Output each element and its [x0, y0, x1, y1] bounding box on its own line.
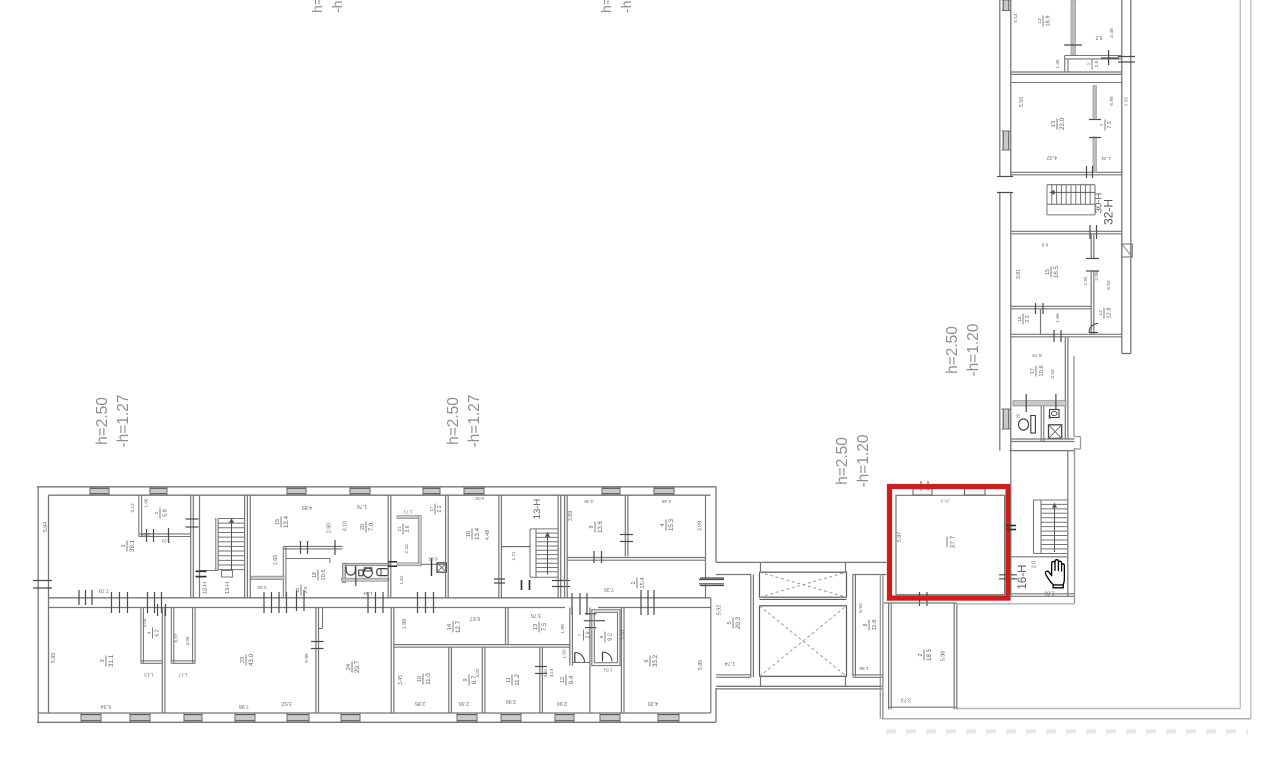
- svg-text:15: 15: [1045, 269, 1051, 275]
- svg-text:16: 16: [1017, 316, 1022, 322]
- svg-text:7.35: 7.35: [604, 586, 614, 592]
- svg-text:1.71: 1.71: [403, 510, 412, 515]
- svg-text:2.50: 2.50: [257, 584, 267, 590]
- svg-text:18.9: 18.9: [1046, 16, 1052, 27]
- svg-text:3: 3: [100, 659, 106, 662]
- svg-text:11.6: 11.6: [872, 620, 878, 631]
- svg-text:31.1: 31.1: [108, 654, 115, 667]
- svg-text:3.81: 3.81: [543, 668, 548, 677]
- svg-text:11: 11: [506, 677, 512, 683]
- svg-text:14: 14: [447, 624, 453, 630]
- svg-text:4.10: 4.10: [343, 521, 349, 531]
- svg-text:3.61: 3.61: [161, 538, 171, 544]
- svg-text:7.3: 7.3: [1107, 121, 1113, 128]
- svg-text:1.76: 1.76: [357, 503, 367, 509]
- svg-text:15: 15: [275, 519, 281, 525]
- svg-text:13: 13: [533, 624, 539, 630]
- svg-text:8.2: 8.2: [1095, 34, 1102, 40]
- svg-text:2.5: 2.5: [1094, 60, 1100, 67]
- svg-text:5.98: 5.98: [941, 651, 947, 661]
- svg-text:43.0: 43.0: [248, 653, 255, 666]
- svg-text:39.1: 39.1: [129, 539, 136, 552]
- svg-text:1: 1: [121, 544, 127, 547]
- svg-text:1.71: 1.71: [511, 551, 517, 561]
- svg-text:1.94: 1.94: [363, 590, 373, 596]
- svg-text:12: 12: [1037, 18, 1043, 24]
- svg-text:2.98: 2.98: [1094, 271, 1100, 281]
- svg-text:5.53: 5.53: [1106, 280, 1112, 290]
- svg-text:8: 8: [863, 623, 869, 626]
- svg-text:1.13: 1.13: [144, 672, 154, 678]
- svg-text:2.3: 2.3: [1025, 315, 1031, 322]
- svg-text:-h=1.27: -h=1.27: [115, 394, 132, 447]
- svg-text:1.98: 1.98: [402, 619, 408, 629]
- svg-text:3.52: 3.52: [282, 700, 292, 706]
- svg-text:2.90: 2.90: [327, 523, 333, 533]
- svg-text:2.92: 2.92: [1083, 276, 1088, 285]
- svg-text:1.81: 1.81: [399, 575, 404, 584]
- svg-text:5.95: 5.95: [304, 653, 310, 663]
- svg-text:4: 4: [660, 523, 666, 526]
- svg-text:6: 6: [644, 659, 650, 662]
- svg-text:6.2: 6.2: [155, 629, 161, 636]
- svg-text:13-Н: 13-Н: [532, 499, 543, 520]
- svg-text:24: 24: [346, 664, 352, 670]
- svg-text:2.2: 2.2: [437, 505, 443, 512]
- svg-text:4: 4: [146, 631, 151, 634]
- svg-text:9: 9: [463, 678, 469, 681]
- svg-text:6.34: 6.34: [101, 703, 111, 709]
- svg-text:15.4: 15.4: [640, 577, 646, 589]
- svg-text:5.95: 5.95: [1109, 96, 1115, 106]
- svg-text:h=2.50: h=2.50: [445, 397, 462, 445]
- svg-text:15.3: 15.3: [668, 518, 675, 531]
- svg-text:32-Н: 32-Н: [1102, 199, 1116, 225]
- svg-text:-h=1.27: -h=1.27: [329, 0, 345, 13]
- svg-text:5: 5: [727, 621, 733, 624]
- svg-text:13-Н: 13-Н: [225, 582, 231, 594]
- svg-text:3.02: 3.02: [475, 668, 480, 677]
- svg-text:2.99: 2.99: [141, 531, 151, 537]
- svg-text:1.66: 1.66: [1055, 313, 1061, 323]
- svg-text:37.7: 37.7: [949, 535, 956, 548]
- svg-text:14: 14: [1098, 310, 1104, 316]
- svg-text:10: 10: [417, 676, 423, 682]
- svg-text:3.00: 3.00: [475, 495, 485, 501]
- svg-text:19: 19: [1016, 414, 1021, 419]
- svg-text:2.36: 2.36: [459, 700, 469, 706]
- svg-text:1.17: 1.17: [178, 672, 188, 678]
- svg-text:18: 18: [312, 572, 318, 578]
- svg-text:2.48: 2.48: [1109, 28, 1115, 38]
- svg-text:21: 21: [397, 526, 402, 531]
- svg-text:2.90: 2.90: [557, 700, 567, 706]
- svg-text:20.3: 20.3: [735, 616, 742, 629]
- svg-text:17: 17: [429, 506, 434, 511]
- svg-text:23.0: 23.0: [1059, 117, 1066, 130]
- svg-text:2: 2: [918, 653, 924, 656]
- svg-text:22: 22: [295, 587, 300, 592]
- svg-text:5.92: 5.92: [717, 605, 723, 615]
- svg-text:1.30: 1.30: [1055, 59, 1060, 68]
- svg-text:18: 18: [1047, 415, 1052, 420]
- svg-text:11.2: 11.2: [514, 674, 521, 686]
- svg-text:9.4: 9.4: [568, 675, 575, 684]
- svg-text:2.6: 2.6: [405, 525, 411, 532]
- svg-text:16: 16: [466, 531, 472, 537]
- svg-text:1.96: 1.96: [859, 665, 869, 671]
- svg-text:5.94: 5.94: [43, 522, 49, 532]
- svg-text:13.4: 13.4: [474, 527, 481, 540]
- svg-text:5.95: 5.95: [51, 653, 57, 663]
- svg-text:13.4: 13.4: [283, 515, 290, 528]
- svg-text:h=2.50: h=2.50: [598, 0, 614, 13]
- svg-text:10.8: 10.8: [1039, 365, 1045, 376]
- svg-text:7.0: 7.0: [368, 522, 375, 531]
- svg-text:3.06: 3.06: [185, 636, 190, 645]
- svg-text:2.96: 2.96: [506, 698, 516, 704]
- svg-text:5.95: 5.95: [1124, 96, 1130, 106]
- svg-text:5.97: 5.97: [897, 532, 903, 542]
- svg-text:12.8: 12.8: [1107, 308, 1113, 319]
- svg-text:13.6: 13.6: [597, 520, 604, 533]
- svg-text:2.80: 2.80: [1044, 590, 1055, 596]
- svg-text:20.7: 20.7: [354, 660, 361, 673]
- svg-text:26.9: 26.9: [940, 499, 949, 504]
- svg-text:12-Н: 12-Н: [203, 582, 209, 594]
- svg-text:3.04: 3.04: [1050, 369, 1056, 379]
- svg-text:1.33: 1.33: [1101, 156, 1110, 161]
- svg-text:33.2: 33.2: [652, 654, 659, 667]
- svg-text:-h=1.27: -h=1.27: [466, 394, 483, 447]
- svg-text:5.50: 5.50: [1019, 97, 1025, 107]
- svg-text:13: 13: [1051, 121, 1057, 127]
- svg-text:9: 9: [589, 525, 595, 528]
- svg-text:3.49: 3.49: [584, 498, 594, 504]
- svg-text:7.5: 7.5: [541, 622, 548, 631]
- svg-text:2: 2: [154, 511, 160, 514]
- svg-text:4.48: 4.48: [485, 530, 491, 540]
- svg-text:1.65: 1.65: [273, 555, 279, 565]
- svg-text:7.70: 7.70: [99, 587, 109, 593]
- svg-text:4.89: 4.89: [302, 504, 312, 510]
- svg-text:2.6: 2.6: [586, 631, 592, 638]
- svg-text:3.08: 3.08: [142, 618, 147, 627]
- svg-text:-h=1.27: -h=1.27: [618, 0, 634, 13]
- svg-text:2.0: 2.0: [303, 586, 309, 593]
- svg-text:2.85: 2.85: [415, 700, 425, 706]
- svg-text:7.96: 7.96: [239, 703, 249, 709]
- svg-text:12: 12: [560, 677, 566, 683]
- svg-text:3.89: 3.89: [568, 511, 574, 521]
- svg-text:1.06: 1.06: [144, 498, 149, 507]
- svg-text:5.94: 5.94: [858, 603, 864, 613]
- svg-text:h=2.50: h=2.50: [944, 326, 961, 374]
- svg-text:23: 23: [240, 657, 246, 663]
- svg-text:16-Н: 16-Н: [1017, 565, 1029, 590]
- svg-text:1.99: 1.99: [560, 624, 566, 634]
- svg-text:9.2: 9.2: [608, 633, 614, 641]
- svg-text:5.14: 5.14: [1013, 13, 1019, 23]
- svg-text:h=2.50: h=2.50: [309, 0, 325, 13]
- svg-text:6.79: 6.79: [1032, 352, 1042, 358]
- svg-text:6.9: 6.9: [1041, 243, 1048, 248]
- svg-text:7: 7: [1099, 123, 1104, 126]
- svg-text:3.12: 3.12: [130, 503, 136, 513]
- svg-text:2.43: 2.43: [404, 544, 410, 554]
- svg-text:17: 17: [1030, 368, 1036, 374]
- svg-text:6.87: 6.87: [174, 633, 179, 642]
- svg-text:6.57: 6.57: [470, 615, 480, 621]
- svg-text:3.00: 3.00: [621, 630, 627, 640]
- svg-text:3.19: 3.19: [549, 668, 554, 677]
- svg-text:10.5: 10.5: [321, 569, 327, 580]
- svg-text:h=2.50: h=2.50: [94, 397, 111, 445]
- svg-text:-h=1.20: -h=1.20: [855, 434, 872, 487]
- svg-text:5.8: 5.8: [163, 509, 169, 517]
- svg-text:3.09: 3.09: [698, 521, 704, 531]
- svg-text:3.73: 3.73: [901, 697, 911, 703]
- svg-text:6.93: 6.93: [428, 557, 437, 562]
- svg-text:1.74: 1.74: [725, 660, 735, 666]
- svg-text:3.45: 3.45: [398, 675, 404, 685]
- svg-text:8: 8: [599, 635, 605, 638]
- svg-text:2.0: 2.0: [1032, 561, 1038, 569]
- svg-text:16.5: 16.5: [1053, 265, 1060, 278]
- svg-text:1.01: 1.01: [603, 668, 612, 673]
- svg-text:3.81: 3.81: [1016, 269, 1022, 279]
- svg-text:20: 20: [360, 524, 366, 530]
- svg-text:4.20: 4.20: [648, 700, 658, 706]
- svg-text:4.32: 4.32: [1047, 154, 1057, 160]
- svg-text:11.0: 11.0: [425, 673, 432, 685]
- svg-text:5.95: 5.95: [698, 660, 704, 670]
- svg-text:4.36: 4.36: [662, 498, 672, 504]
- svg-text:18.5: 18.5: [926, 648, 933, 661]
- svg-text:-h=1.20: -h=1.20: [965, 323, 982, 376]
- svg-text:12.7: 12.7: [455, 620, 462, 633]
- svg-text:h=2.50: h=2.50: [834, 437, 851, 485]
- svg-text:3.76: 3.76: [531, 612, 541, 618]
- svg-text:1.50: 1.50: [562, 649, 567, 658]
- svg-text:2: 2: [631, 581, 637, 584]
